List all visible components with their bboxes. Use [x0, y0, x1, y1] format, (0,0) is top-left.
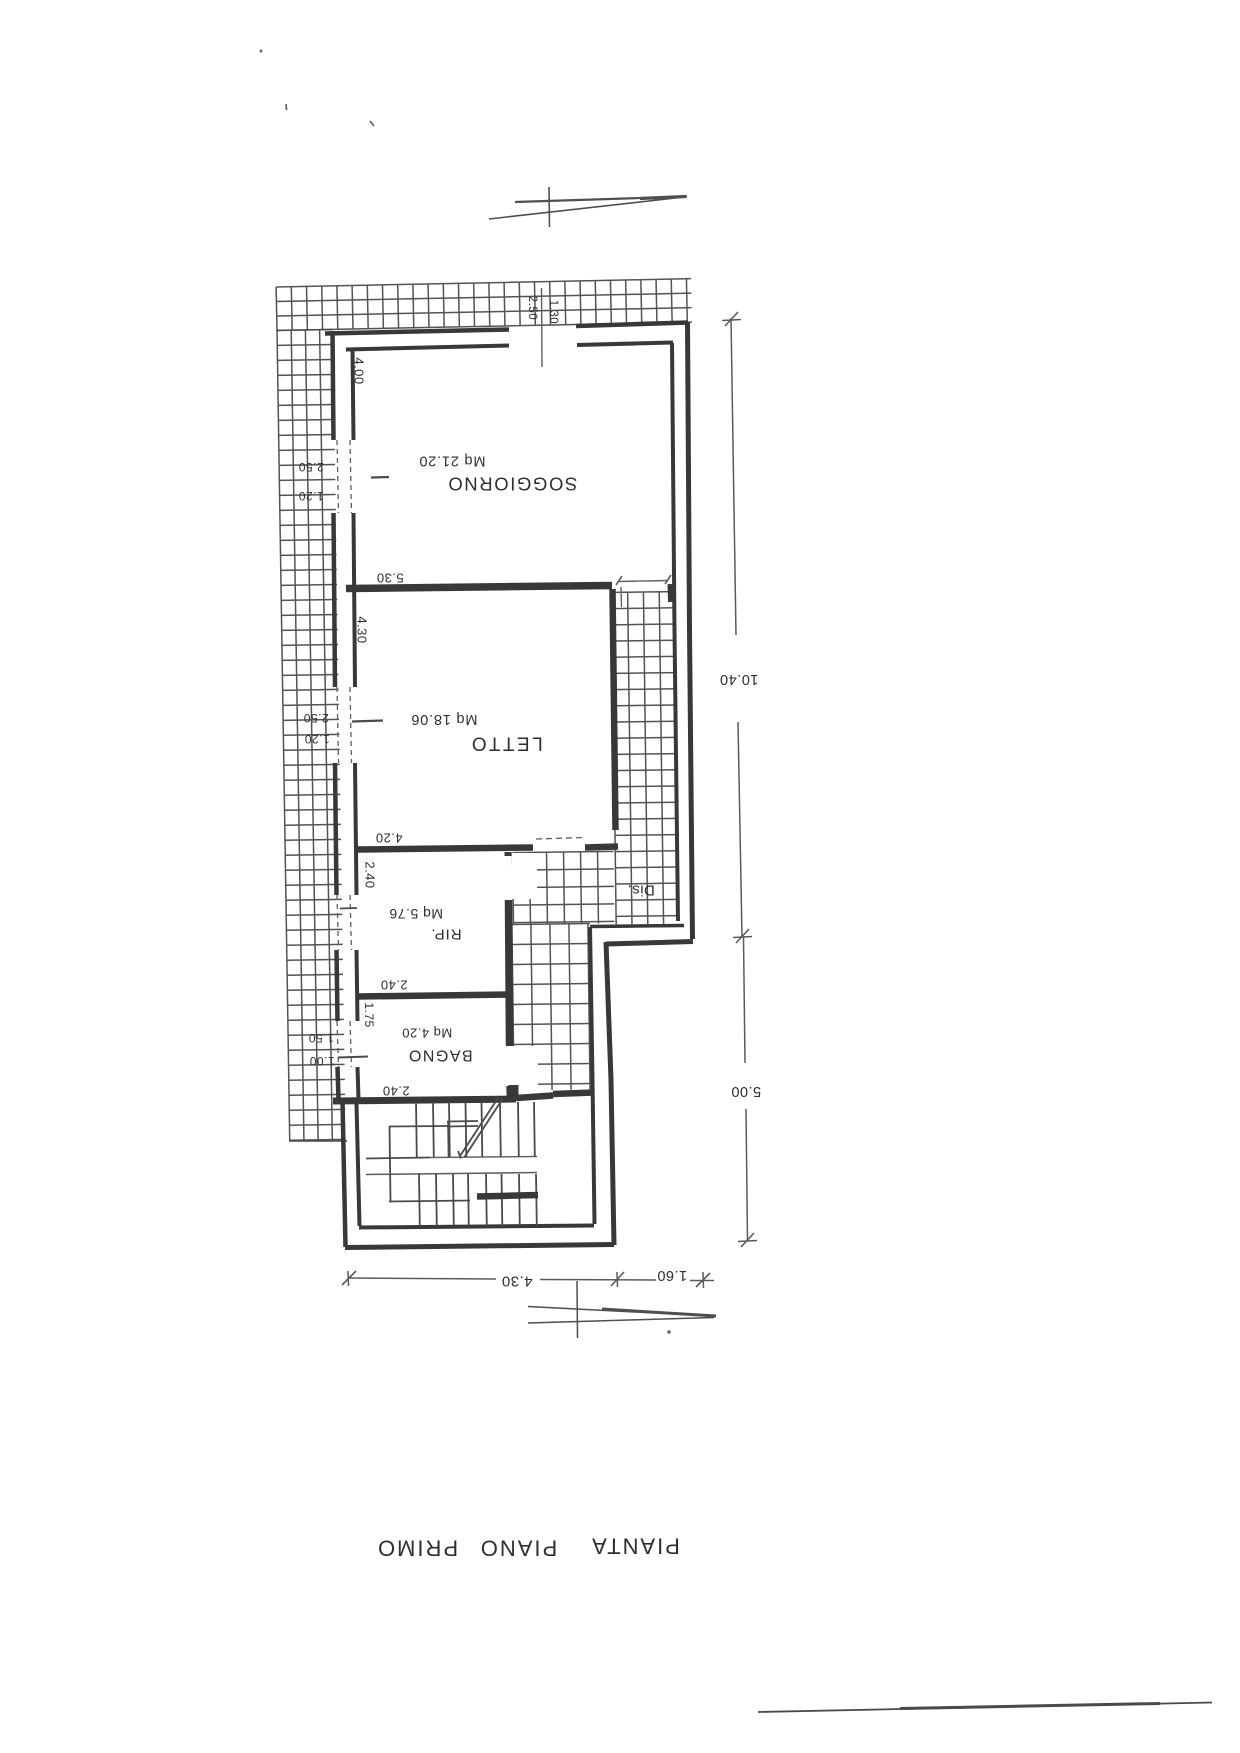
svg-text:RIP.: RIP. [430, 926, 461, 943]
svg-text:4.20: 4.20 [375, 831, 402, 846]
svg-text:2.50: 2.50 [298, 460, 323, 474]
svg-text:LETTO: LETTO [469, 733, 542, 754]
svg-text:1.50: 1.50 [308, 1031, 333, 1045]
svg-text:2.50: 2.50 [526, 296, 538, 320]
svg-text:2.40: 2.40 [380, 978, 407, 993]
svg-text:BAGNO: BAGNO [407, 1047, 472, 1064]
svg-text:Dis.: Dis. [627, 882, 655, 899]
svg-text:5.00: 5.00 [731, 1083, 761, 1099]
svg-text:4.30: 4.30 [355, 616, 370, 643]
svg-text:Mq 4.20: Mq 4.20 [402, 1026, 452, 1041]
svg-text:SOGGIORNO: SOGGIORNO [447, 474, 578, 495]
svg-text:PRIMO: PRIMO [376, 1536, 458, 1561]
svg-text:4.30: 4.30 [501, 1273, 532, 1290]
svg-text:1.00: 1.00 [309, 1054, 334, 1068]
svg-text:1.20: 1.20 [304, 732, 329, 746]
svg-text:2.50: 2.50 [303, 711, 328, 725]
svg-text:4.00: 4.00 [352, 357, 367, 384]
svg-text:Mq 5.76: Mq 5.76 [389, 906, 443, 922]
svg-text:1.75: 1.75 [362, 1002, 376, 1027]
svg-text:2.40: 2.40 [382, 1084, 409, 1099]
svg-text:10.40: 10.40 [720, 671, 759, 687]
svg-text:Mq 21.20: Mq 21.20 [419, 453, 486, 469]
svg-text:1.20: 1.20 [298, 489, 323, 503]
svg-text:1.60: 1.60 [657, 1267, 687, 1283]
svg-text:2.40: 2.40 [363, 861, 378, 888]
svg-text:Mq 18.06: Mq 18.06 [411, 711, 478, 727]
svg-text:PIANO: PIANO [479, 1536, 557, 1561]
svg-text:5.30: 5.30 [376, 571, 403, 586]
svg-text:PIANTA: PIANTA [590, 1534, 680, 1559]
svg-text:1.30: 1.30 [547, 300, 559, 324]
